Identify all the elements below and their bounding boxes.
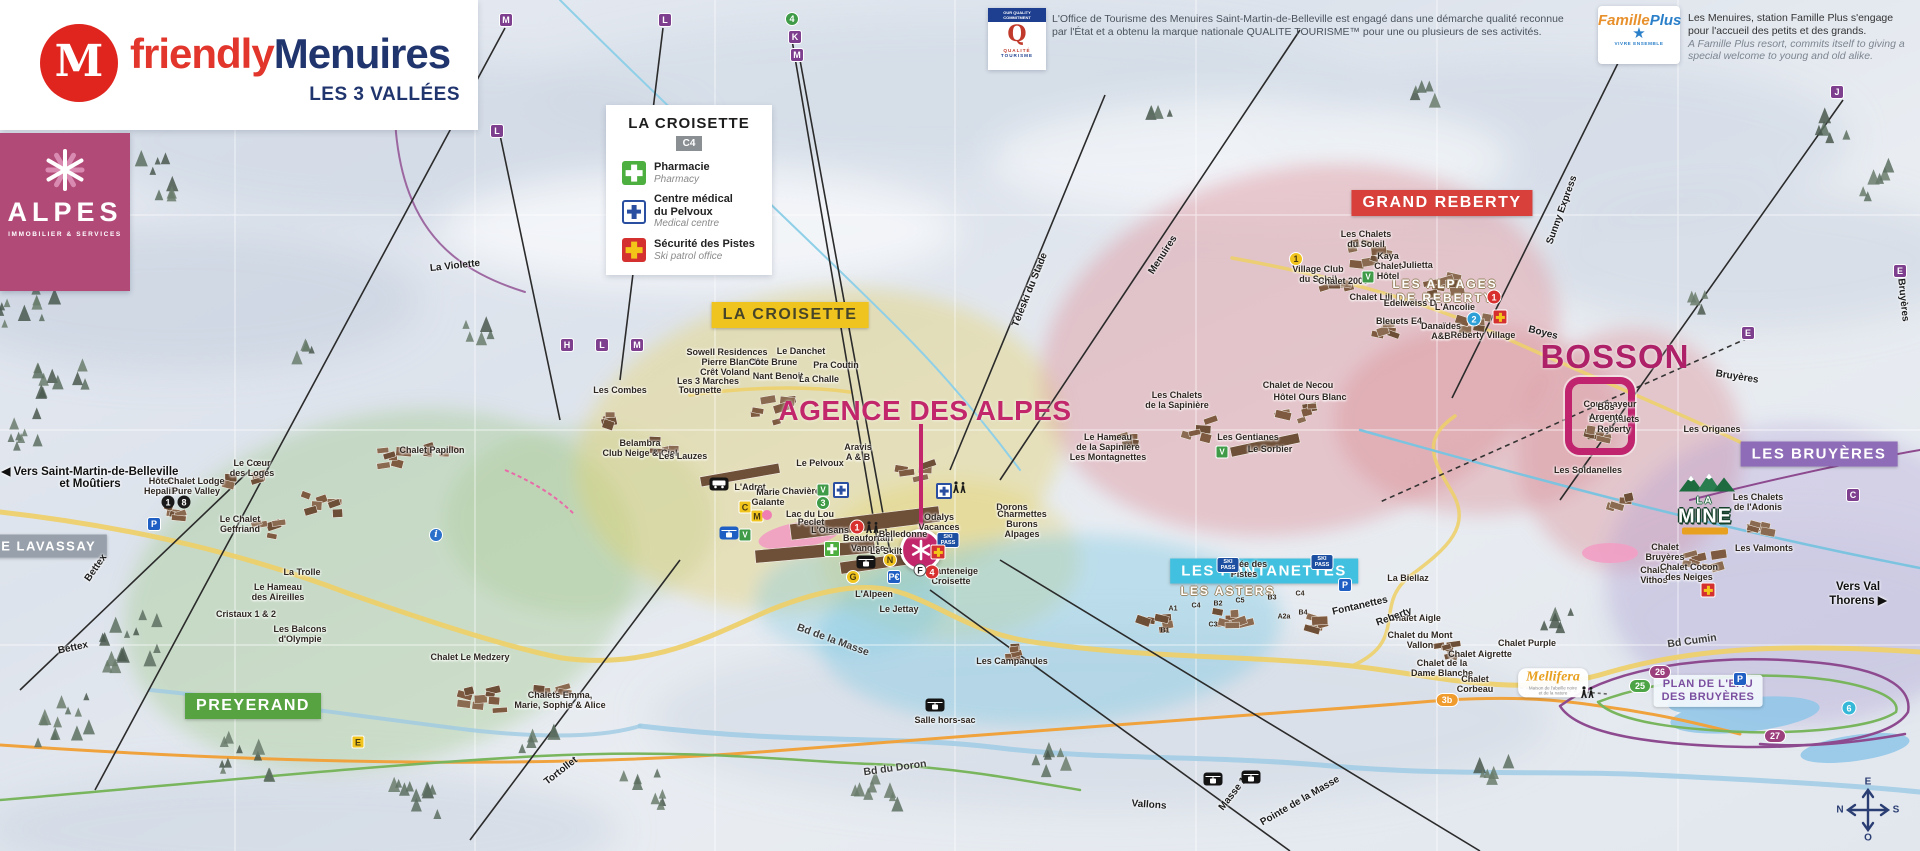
legend-item-en: Pharmacy: [654, 174, 710, 186]
mellifera-sub: Maison de l'abeille noire et de la natur…: [1526, 685, 1580, 696]
legend-item-en: Ski patrol office: [654, 251, 755, 263]
brand-tagline: LES 3 VALLÉES: [130, 84, 460, 106]
la-mine-ribbon: [1682, 528, 1728, 535]
mine-mountains-icon: [1673, 472, 1737, 492]
legend-item: PharmaciePharmacy: [606, 157, 772, 189]
agence-pointer-line: [919, 424, 923, 546]
brand-card: M friendlyMenuires LES 3 VALLÉES: [0, 0, 478, 130]
region-label-grand-reberty: GRAND REBERTY: [1351, 190, 1532, 216]
mellifera-label: Mellifera Maison de l'abeille noire et d…: [1518, 668, 1588, 697]
legend-item-fr: Pharmacie: [654, 161, 710, 174]
compass-e: E: [1865, 777, 1872, 788]
region-label-les-bruyeres: LES BRUYÈRES: [1741, 442, 1898, 467]
menuires-logo-icon: M: [40, 24, 118, 102]
agence-snowflake-marker: [900, 529, 942, 571]
qualite-q-icon: Q: [988, 22, 1046, 47]
famille-text-en: A Famille Plus resort, commits itself to…: [1688, 38, 1916, 64]
legend-item-fr: Sécurité des Pistes: [654, 238, 755, 251]
legend-item: Sécurité des PistesSki patrol office: [606, 234, 772, 266]
famille-sub: VIVRE ENSEMBLE: [1598, 41, 1680, 46]
quality-text: L'Office de Tourisme des Menuires Saint-…: [1052, 13, 1567, 39]
mellifera-name: Mellifera: [1526, 670, 1580, 685]
compass-rose: E S O N: [1836, 778, 1900, 842]
compass-s: S: [1893, 805, 1900, 816]
compass-o: O: [1864, 833, 1872, 844]
agency-name: ALPES: [7, 197, 122, 228]
famille-text-fr: Les Menuires, station Famille Plus s'eng…: [1688, 12, 1916, 38]
bosson-label: BOSSON: [1540, 338, 1689, 376]
plan-de-leau-label: PLAN DE L'EAU DES BRUYÈRES: [1654, 675, 1763, 707]
la-mine-line2: MINE: [1665, 507, 1745, 527]
qualite-tourisme-logo: OUR QUALITY COMMITMENT Q QUALITÉ TOURISM…: [988, 8, 1046, 70]
legend-item-en: Medical centre: [654, 218, 733, 230]
ski-patrol-cross: [622, 238, 646, 262]
pharmacy-cross: [622, 161, 646, 185]
agency-card: ALPES IMMOBILIER & SERVICES: [0, 133, 130, 291]
quality-banner: OUR QUALITY COMMITMENT: [988, 8, 1046, 22]
legend-card: LA CROISETTE C4 PharmaciePharmacyCentre …: [606, 105, 772, 275]
agency-subtitle: IMMOBILIER & SERVICES: [8, 231, 122, 238]
tourisme-word: TOURISME: [1001, 53, 1033, 58]
star-icon: ★: [1598, 29, 1680, 38]
compass-n: N: [1836, 805, 1843, 816]
region-label-les-fontanettes: LES FONTANETTES: [1170, 559, 1358, 584]
region-label-preyerand: PREYERAND: [185, 693, 321, 719]
medical-cross: [622, 200, 646, 224]
legend-item-fr: Centre médical du Pelvoux: [654, 193, 733, 218]
famille-plus-text: Les Menuires, station Famille Plus s'eng…: [1688, 12, 1916, 63]
region-label-la-croisette: LA CROISETTE: [712, 302, 869, 328]
plus-word: Plus: [1650, 12, 1682, 29]
grid-reference-badge: C4: [676, 136, 702, 151]
resort-map: M friendlyMenuires LES 3 VALLÉES ALPES I…: [0, 0, 1920, 851]
agence-des-alpes-label: AGENCE DES ALPES: [778, 395, 1071, 427]
legend-item: Centre médical du PelvouxMedical centre: [606, 189, 772, 234]
la-mine-logo: LA MINE: [1665, 472, 1745, 535]
snowflake-icon: [42, 147, 88, 193]
legend-title: LA CROISETTE: [606, 115, 772, 132]
bosson-highlight-frame: [1565, 377, 1635, 455]
region-label-le-lavassay: LE LAVASSAY: [0, 535, 107, 558]
famille-plus-logo: FamillePlus ★ VIVRE ENSEMBLE: [1598, 6, 1680, 64]
brand-title: friendlyMenuires: [130, 30, 450, 78]
